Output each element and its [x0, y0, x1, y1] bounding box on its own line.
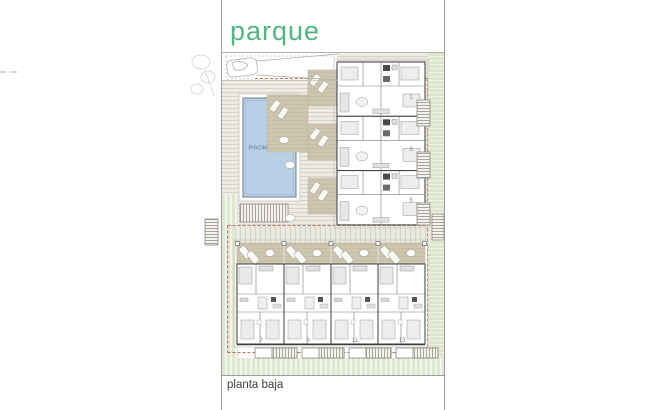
tree-sketch — [191, 55, 215, 96]
park-title: parque — [230, 16, 320, 46]
upper-unit-block — [334, 59, 428, 228]
middle-paving-band — [234, 226, 430, 243]
unit-number: 11 — [352, 338, 359, 344]
lower-terraces — [236, 242, 427, 265]
unit-number: 13 — [399, 338, 406, 344]
lower-unit — [378, 264, 425, 344]
site-plan-sheet: PISCINA = 84 m² 1 3 5 — [0, 0, 660, 410]
upper-unit — [337, 62, 425, 116]
lower-unit — [331, 264, 378, 344]
upper-unit-stairs — [417, 100, 430, 225]
bottom-lawn-strip — [222, 358, 444, 375]
lower-unit — [237, 264, 284, 344]
floor-plan-drawing: PISCINA = 84 m² 1 3 5 — [0, 0, 660, 410]
floor-title: planta baja — [227, 379, 284, 391]
lower-unit-stairs — [255, 348, 438, 358]
pool-deck-stair — [240, 204, 288, 222]
outside-stair-left — [205, 219, 218, 245]
outside-stair-right — [432, 214, 444, 240]
upper-unit — [337, 116, 425, 170]
left-lawn-strip — [222, 195, 238, 375]
lower-unit — [284, 264, 331, 344]
